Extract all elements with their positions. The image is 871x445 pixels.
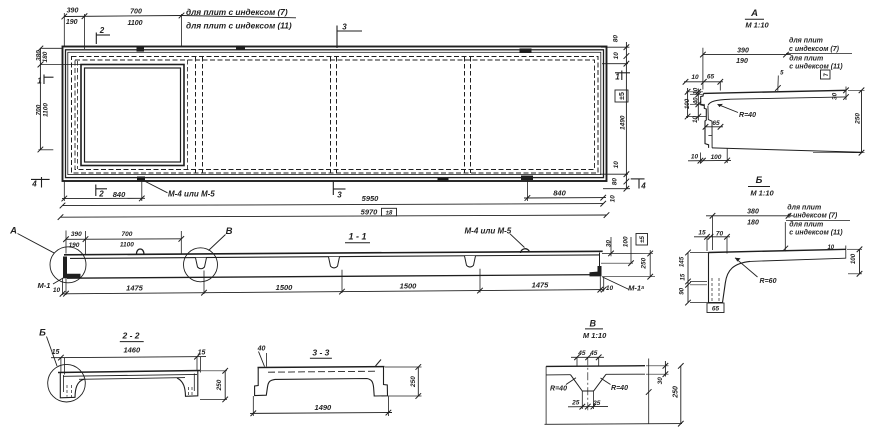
svg-text:±8: ±8 [386, 210, 393, 216]
svg-text:390: 390 [67, 8, 79, 15]
svg-text:700: 700 [35, 104, 42, 115]
svg-text:100: 100 [684, 98, 691, 109]
svg-text:65: 65 [712, 305, 720, 312]
svg-text:250: 250 [672, 386, 679, 399]
svg-text:30: 30 [832, 92, 839, 100]
svg-text:390: 390 [737, 47, 749, 54]
svg-text:90: 90 [678, 287, 685, 294]
svg-text:145: 145 [679, 256, 686, 267]
svg-text:1475: 1475 [126, 284, 144, 293]
svg-text:1500: 1500 [276, 283, 294, 292]
svg-text:R=40: R=40 [739, 112, 756, 119]
svg-text:с индексом (11): с индексом (11) [789, 63, 843, 71]
svg-text:1490: 1490 [315, 403, 333, 412]
svg-text:190: 190 [69, 242, 80, 249]
svg-text:А: А [9, 225, 17, 236]
svg-text:700: 700 [121, 231, 132, 238]
svg-text:1475: 1475 [532, 281, 550, 290]
svg-text:1: 1 [37, 77, 42, 86]
svg-text:100: 100 [622, 236, 629, 247]
svg-text:М 1:10: М 1:10 [750, 188, 774, 197]
svg-text:R=40: R=40 [550, 386, 567, 393]
svg-text:70: 70 [716, 230, 724, 237]
svg-text:250: 250 [410, 376, 417, 388]
svg-text:10: 10 [691, 74, 699, 81]
svg-text:1: 1 [615, 73, 620, 82]
svg-text:10: 10 [691, 154, 699, 161]
svg-text:100: 100 [711, 154, 722, 161]
svg-text:15: 15 [698, 229, 706, 236]
svg-text:65: 65 [707, 74, 715, 81]
svg-text:для плит: для плит [789, 221, 823, 229]
svg-text:40: 40 [257, 345, 266, 352]
svg-text:80: 80 [612, 178, 619, 186]
svg-text:М-1: М-1 [38, 281, 51, 290]
svg-text:Б: Б [39, 328, 46, 339]
svg-text:45: 45 [577, 350, 586, 357]
svg-text:М-4 или М-5: М-4 или М-5 [465, 227, 512, 236]
svg-text:Б: Б [756, 175, 763, 186]
svg-text:4: 4 [31, 180, 37, 189]
svg-text:840: 840 [553, 188, 566, 197]
svg-text:1460: 1460 [123, 346, 141, 355]
svg-text:с индексом (7): с индексом (7) [787, 212, 838, 220]
svg-text:для плит с индексом (7): для плит с индексом (7) [186, 7, 288, 17]
svg-text:М 1:10: М 1:10 [745, 21, 769, 30]
svg-text:10: 10 [53, 287, 61, 294]
svg-text:М-4 или М-5: М-4 или М-5 [168, 190, 215, 199]
svg-text:15: 15 [198, 350, 206, 357]
svg-text:15: 15 [680, 273, 687, 280]
svg-text:250: 250 [854, 113, 861, 125]
svg-text:М-1ᵃ: М-1ᵃ [628, 283, 644, 292]
svg-text:30: 30 [605, 240, 612, 248]
svg-text:840: 840 [113, 190, 126, 199]
svg-text:10: 10 [613, 52, 620, 60]
svg-text:45: 45 [589, 350, 598, 357]
svg-text:700: 700 [130, 9, 142, 16]
svg-text:180: 180 [42, 51, 49, 62]
svg-text:190: 190 [736, 58, 748, 65]
svg-text:±5: ±5 [639, 235, 646, 242]
svg-text:для плит: для плит [789, 55, 823, 63]
svg-text:380: 380 [747, 209, 759, 216]
svg-text:10: 10 [692, 87, 699, 94]
svg-text:R=40: R=40 [611, 385, 628, 392]
svg-text:10: 10 [613, 161, 620, 169]
svg-text:4: 4 [640, 181, 646, 190]
svg-text:для плит с индексом (11): для плит с индексом (11) [186, 21, 292, 31]
svg-text:180: 180 [747, 219, 759, 226]
svg-text:1490: 1490 [619, 115, 626, 130]
svg-text:2 - 2: 2 - 2 [121, 330, 139, 340]
svg-text:2: 2 [98, 189, 104, 198]
svg-text:65: 65 [712, 120, 720, 127]
svg-text:±5: ±5 [619, 92, 626, 100]
svg-text:1500: 1500 [400, 281, 418, 290]
svg-text:1100: 1100 [42, 103, 49, 117]
svg-text:А: А [750, 8, 758, 19]
svg-text:3: 3 [342, 23, 347, 32]
svg-text:80: 80 [612, 35, 619, 43]
svg-text:190: 190 [66, 19, 78, 26]
svg-text:100: 100 [850, 253, 857, 264]
svg-text:В: В [590, 318, 597, 328]
svg-text:3: 3 [337, 191, 342, 200]
svg-text:250: 250 [640, 257, 647, 269]
svg-text:1100: 1100 [127, 20, 142, 27]
svg-text:5950: 5950 [362, 194, 380, 203]
svg-text:2: 2 [99, 26, 105, 35]
svg-text:для плит: для плит [789, 37, 823, 45]
svg-text:R=60: R=60 [760, 278, 777, 285]
svg-text:1 - 1: 1 - 1 [348, 232, 366, 242]
svg-text:с индексом (7): с индексом (7) [789, 45, 840, 53]
svg-text:1100: 1100 [120, 241, 134, 248]
svg-text:5970: 5970 [361, 207, 379, 216]
svg-text:10: 10 [610, 195, 617, 203]
svg-text:для плит: для плит [787, 204, 821, 212]
svg-text:10: 10 [606, 285, 614, 292]
svg-text:В: В [226, 226, 233, 237]
svg-text:25: 25 [571, 399, 580, 406]
svg-text:3 - 3: 3 - 3 [312, 347, 329, 357]
svg-text:с индексом (11): с индексом (11) [789, 228, 843, 236]
svg-text:250: 250 [216, 379, 223, 391]
svg-text:390: 390 [71, 231, 82, 238]
svg-text:М 1:10: М 1:10 [583, 331, 607, 340]
svg-text:15: 15 [52, 349, 60, 356]
svg-text:30: 30 [657, 377, 664, 385]
